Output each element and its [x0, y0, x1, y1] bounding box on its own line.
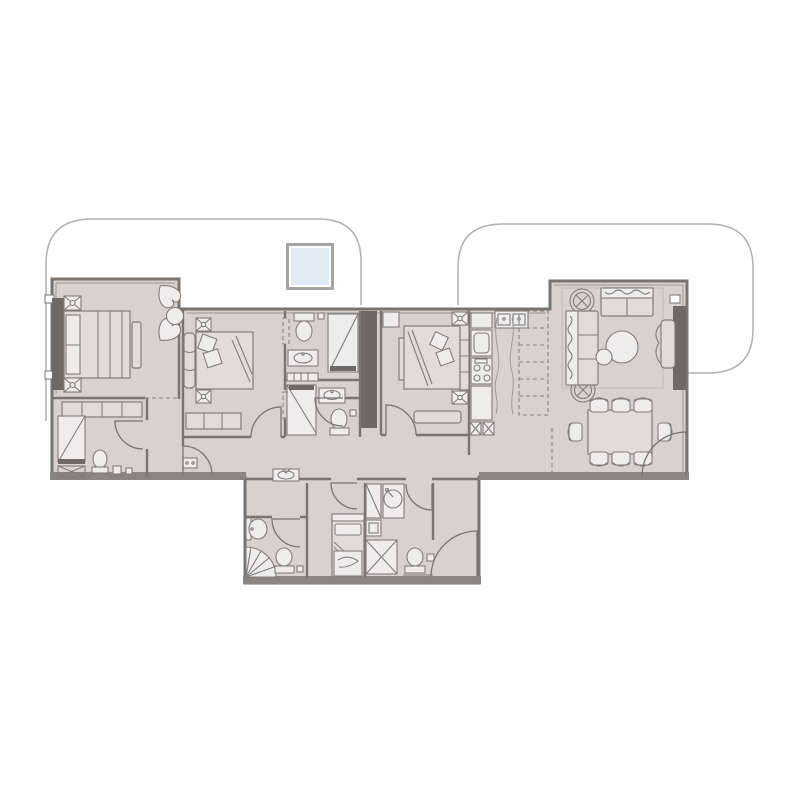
bed-bench: [132, 322, 141, 368]
round-basin: [383, 484, 404, 518]
dining-table: [588, 410, 652, 454]
tall-cupboard: [366, 484, 381, 518]
toilet: [405, 548, 425, 573]
planter: [570, 289, 594, 313]
bed-bench: [414, 411, 461, 423]
bath-accessory: [427, 554, 434, 561]
folded-blanket: [334, 551, 362, 576]
skylight: [286, 243, 334, 290]
toilet: [92, 450, 108, 473]
side-table: [596, 349, 612, 365]
shaft-washer: [366, 540, 397, 574]
hall-console: [183, 458, 197, 468]
skylight-glass: [290, 247, 330, 286]
nightstand: [452, 391, 468, 404]
bath-accessory: [318, 313, 324, 319]
nightstand: [64, 296, 81, 310]
accent-chair: [656, 320, 675, 368]
nightstand: [196, 318, 211, 331]
bath-accessory: [350, 410, 356, 416]
toilet: [294, 313, 314, 341]
nightstand: [64, 378, 81, 392]
fridge: [471, 330, 492, 356]
floorplan-canvas: [0, 0, 800, 800]
wardrobe-panel: [361, 311, 377, 428]
shelf: [287, 373, 318, 381]
window-mark: [670, 295, 680, 303]
wall-basin: [246, 518, 267, 540]
bath-accessory: [113, 466, 121, 474]
dining-chair: [612, 398, 630, 412]
dining-chair: [590, 398, 608, 412]
low-cabinet: [186, 413, 241, 429]
side-table: [167, 308, 184, 325]
hall-basin: [273, 469, 299, 481]
edge-bottom-right: [479, 472, 689, 480]
bed-headboard: [332, 514, 364, 521]
floorplan-svg: [0, 0, 800, 800]
headboard-slats: [460, 324, 469, 390]
chaise-cushion: [184, 333, 195, 388]
vanity-sink: [319, 388, 345, 403]
dining-chair: [568, 423, 582, 441]
headboard-panel: [52, 298, 64, 390]
shower-threshold: [58, 459, 85, 464]
cabinet: [366, 520, 381, 536]
toilet: [275, 548, 294, 573]
loveseat: [601, 288, 653, 316]
kitchen-sink: [495, 311, 528, 328]
shower: [287, 385, 316, 435]
bath-accessory: [297, 566, 303, 572]
counter-cabinet: [471, 313, 492, 328]
vanity-sink: [288, 350, 318, 366]
stove: [471, 358, 492, 384]
dining-chair: [658, 423, 672, 441]
dining-chair: [634, 398, 652, 412]
dining-chair: [590, 452, 608, 466]
shower: [328, 314, 358, 372]
maid-room: [332, 514, 364, 577]
bath-accessory: [126, 468, 132, 474]
counter-cabinet: [471, 386, 492, 420]
corner-shelf: [383, 312, 399, 327]
nightstand: [196, 390, 211, 403]
dining-chair: [612, 452, 630, 466]
nightstand: [452, 312, 468, 325]
bed-pillow: [335, 524, 361, 535]
sofa: [566, 311, 598, 385]
